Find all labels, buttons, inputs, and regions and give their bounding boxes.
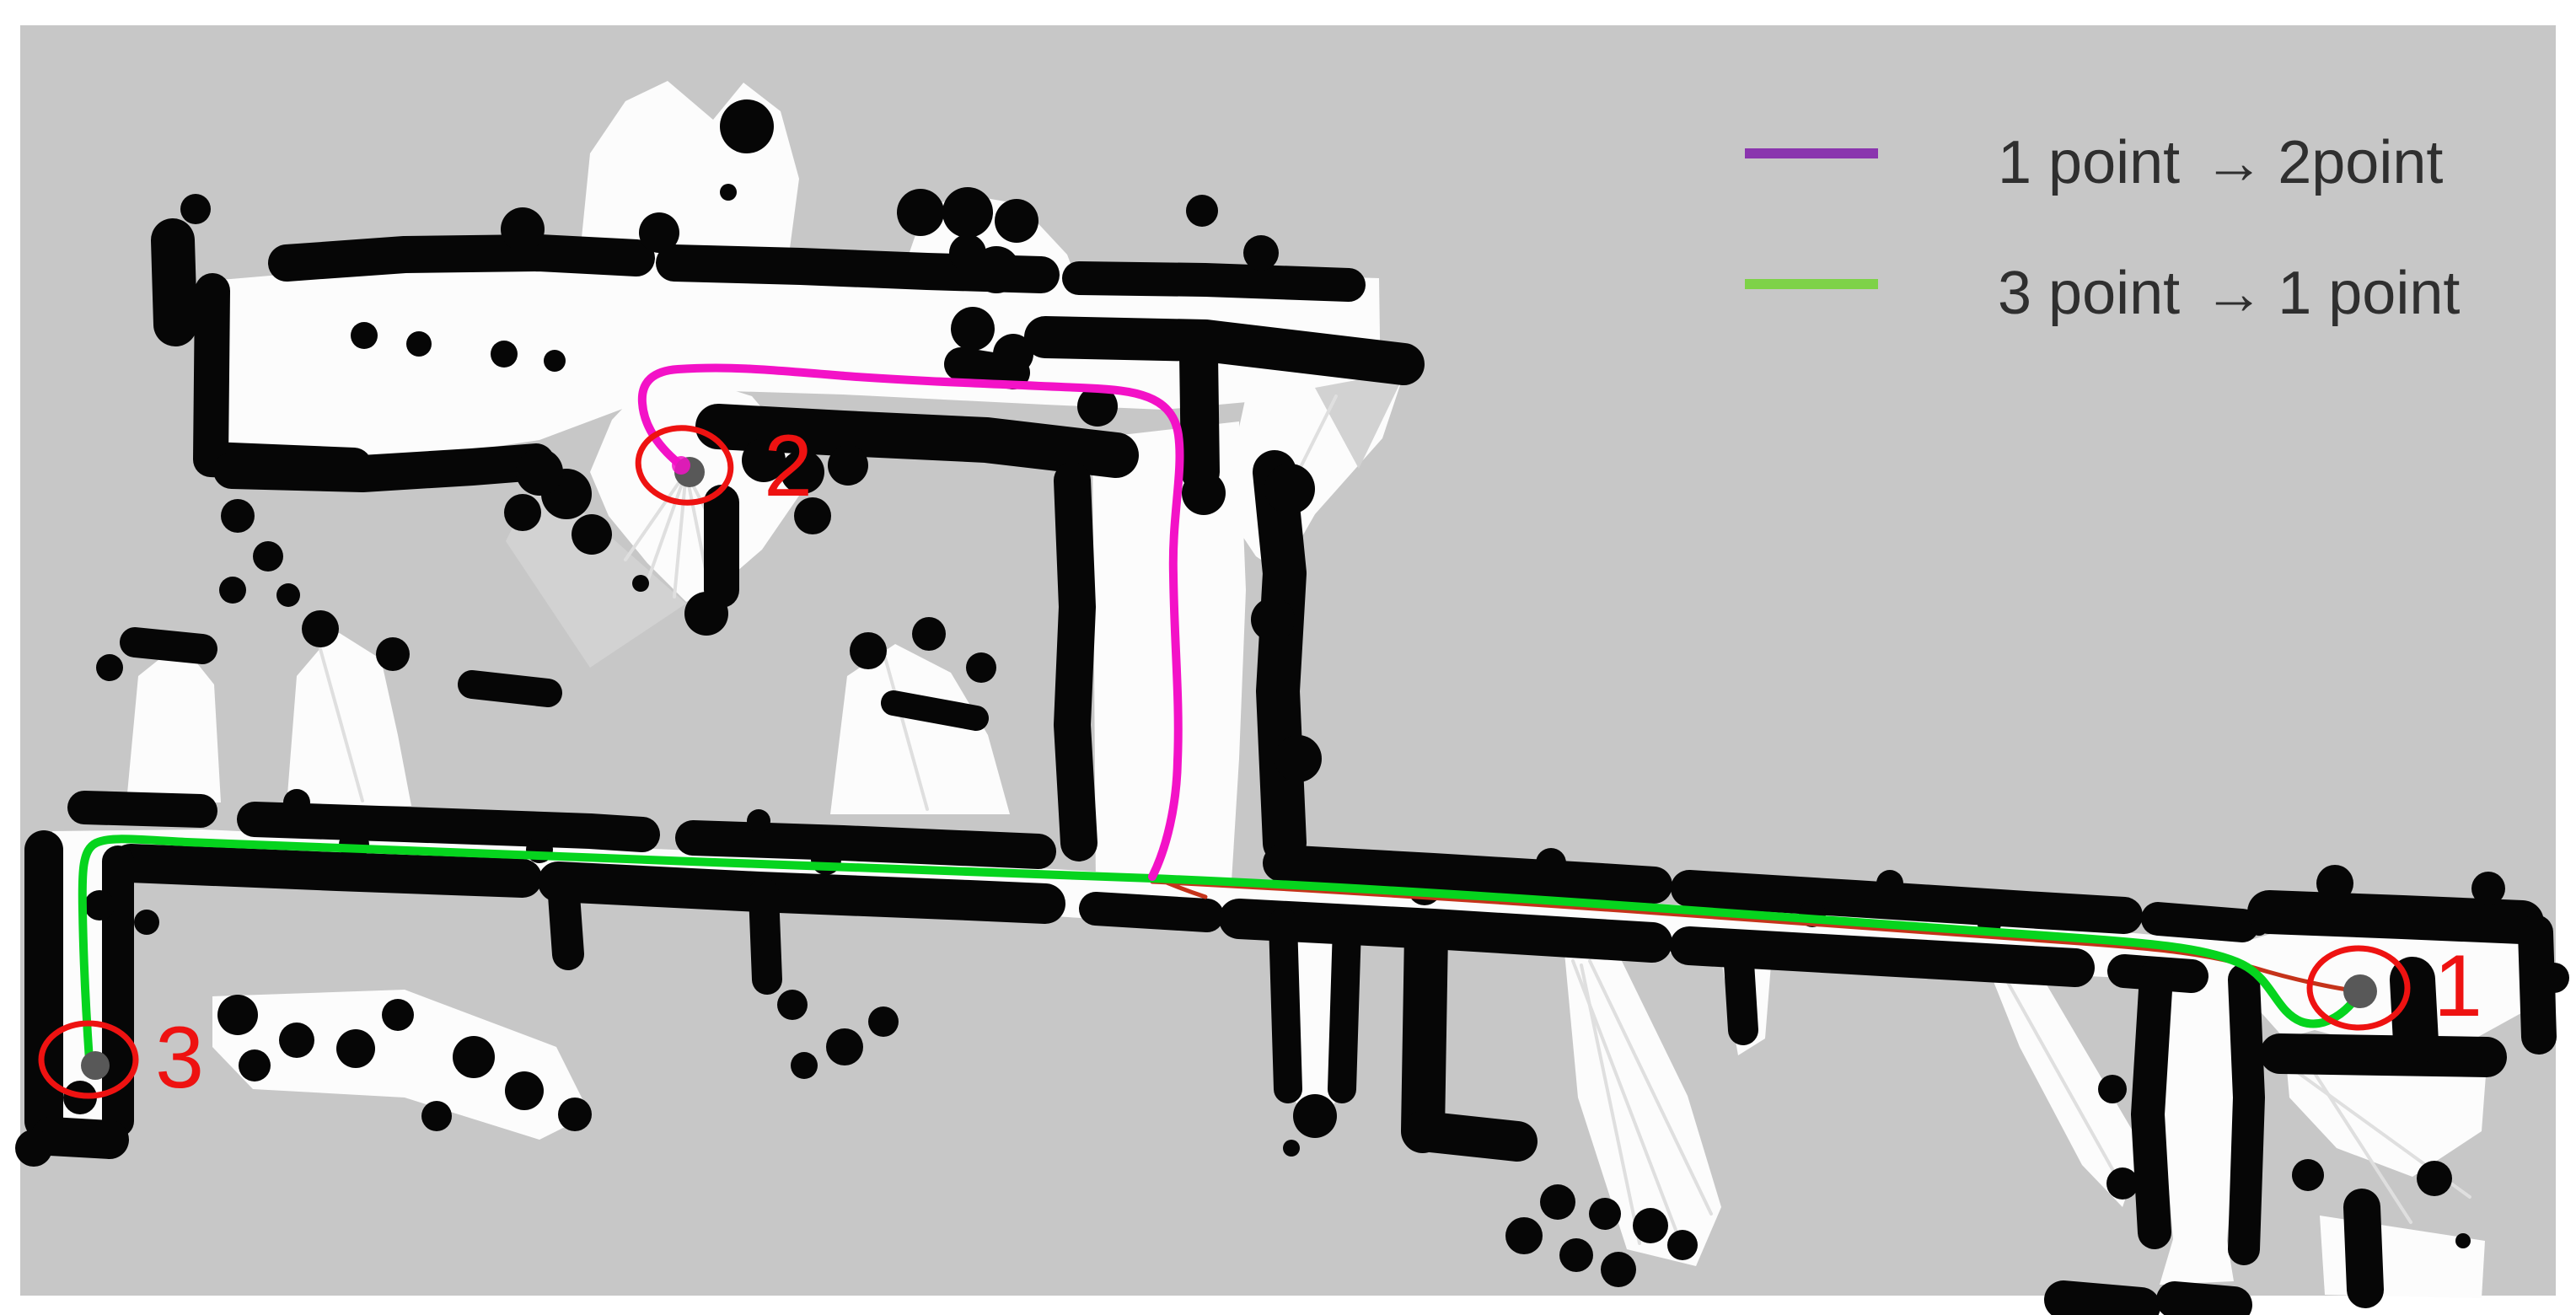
map-wall-blobs-lower-shape <box>1633 1208 1668 1243</box>
map-walls-lower-shape <box>1738 949 1743 1030</box>
map-walls-lower-shape <box>84 808 201 811</box>
legend-label-1-to-2: 1 point→2point <box>1998 129 2443 196</box>
map-walls-lower-shape <box>693 838 1038 851</box>
map-walls-lower-shape <box>1342 927 1347 1089</box>
map-wall-blobs-upper-shape <box>376 637 410 671</box>
map-walls-lower-shape <box>255 819 642 835</box>
map-wall-blobs-upper-shape <box>684 592 728 636</box>
map-walls-lower-shape <box>51 1136 110 1140</box>
map-wall-blobs-lower-shape <box>2251 919 2267 936</box>
map-wall-blobs-upper-shape <box>951 307 995 351</box>
legend-label-1-to-2-shape: → <box>2203 129 2264 196</box>
map-walls-lower-shape <box>563 883 568 954</box>
map-wall-blobs-lower-shape <box>777 990 808 1020</box>
map-wall-blobs-upper-shape <box>897 189 944 236</box>
marker-label-2: 2 <box>764 417 813 515</box>
map-wall-blobs-lower-shape <box>283 789 310 816</box>
map-wall-blobs-lower-shape <box>558 1098 592 1131</box>
map-wall-blobs-lower-shape <box>279 1022 314 1058</box>
legend-swatch-green <box>1745 279 1878 289</box>
map-wall-blobs-lower-shape <box>1283 1140 1300 1157</box>
map-wall-blobs-upper-shape <box>1243 235 1279 271</box>
map-wall-blobs-lower-shape <box>336 1029 375 1068</box>
map-wall-blobs-lower-shape <box>1667 1230 1698 1260</box>
map-wall-blobs-upper-shape <box>632 575 649 592</box>
map-wall-blobs-upper-shape <box>276 583 300 607</box>
map-wall-blobs-upper-shape <box>828 445 868 486</box>
map-wall-blobs-lower-shape <box>505 1071 544 1110</box>
map-wall-blobs-lower-shape <box>15 1130 52 1167</box>
map-walls-lower-shape <box>2158 919 2242 926</box>
map-walls-upper-shape <box>472 684 548 693</box>
map-wall-blobs-upper-shape <box>180 194 211 224</box>
map-walls-lower-shape <box>1423 1131 1517 1141</box>
map-wall-blobs-upper-shape <box>1186 195 1218 227</box>
map-wall-blobs-upper-shape <box>253 541 283 572</box>
legend-label-3-to-1: 3 point→1 point <box>1998 260 2460 327</box>
map-walls-lower-shape <box>2175 1300 2234 1305</box>
map-wall-blobs-lower-shape <box>1601 1252 1636 1287</box>
map-wall-blobs-upper-shape <box>995 199 1038 243</box>
map-walls-upper-shape <box>173 240 175 325</box>
waypoint-2-pose-tint <box>672 456 690 475</box>
map-walls-upper-shape <box>287 253 636 263</box>
map-walls-upper-shape <box>1072 480 1079 843</box>
map-wall-blobs-upper-shape <box>491 341 518 368</box>
map-wall-blobs-lower-shape <box>826 1028 863 1065</box>
map-walls-lower-shape <box>131 863 523 878</box>
map-wall-blobs-upper-shape <box>720 99 774 153</box>
map-walls-lower-shape <box>558 882 1045 904</box>
map-walls-upper-shape <box>1275 472 1285 843</box>
map-wall-blobs-lower-shape <box>1876 870 1903 897</box>
map-walls-upper-shape <box>894 703 976 718</box>
map-wall-blobs-lower-shape <box>2471 872 2505 905</box>
legend-swatch-purple <box>1745 148 1878 158</box>
map-wall-blobs-lower-shape <box>2417 1161 2452 1196</box>
legend-label-1-to-2-shape: 2point <box>2278 129 2443 196</box>
map-wall-blobs-upper-shape <box>850 632 887 669</box>
map-wall-blobs-lower-shape <box>84 890 115 920</box>
map-walls-lower-shape <box>2536 932 2539 1037</box>
map-walls-upper-shape <box>1079 278 1349 285</box>
legend-label-3-to-1-shape: 3 point <box>1998 260 2180 327</box>
map-wall-blobs-lower-shape <box>134 910 159 935</box>
map-wall-blobs-lower-shape <box>453 1036 495 1078</box>
marker-label-1: 1 <box>2434 937 2482 1035</box>
map-wall-blobs-upper-shape <box>351 322 378 349</box>
map-wall-blobs-lower-shape <box>2539 963 2569 993</box>
map-wall-blobs-lower-shape <box>868 1006 899 1037</box>
map-wall-blobs-upper-shape <box>993 334 1033 374</box>
map-wall-blobs-upper-shape <box>1182 471 1226 515</box>
map-wall-blobs-lower-shape <box>2098 1075 2127 1103</box>
map-walls-upper-shape <box>135 642 202 649</box>
map-wall-blobs-lower-shape <box>2292 1159 2324 1191</box>
map-walls-lower-shape <box>1283 922 1288 1089</box>
map-wall-blobs-upper-shape <box>912 617 946 651</box>
map-wall-blobs-lower-shape <box>747 809 770 833</box>
marker-label-3: 3 <box>155 1009 204 1107</box>
map-walls-upper-shape <box>232 462 536 474</box>
map-walls-lower-shape <box>1281 863 1654 885</box>
map-wall-blobs-upper-shape <box>501 207 545 251</box>
map-wall-blobs-upper-shape <box>1251 598 1295 641</box>
map-wall-blobs-lower-shape <box>791 1052 818 1079</box>
map-wall-blobs-upper-shape <box>302 610 339 647</box>
map-wall-blobs-upper-shape <box>544 350 566 372</box>
map-wall-blobs-upper-shape <box>219 577 246 604</box>
waypoint-dot-3 <box>81 1051 110 1080</box>
map-wall-blobs-lower-shape <box>1293 1094 1337 1138</box>
map-wall-blobs-upper-shape <box>221 499 255 533</box>
map-wall-blobs-upper-shape <box>406 331 432 357</box>
waypoint-dot-1 <box>2343 974 2377 1008</box>
map-wall-blobs-upper-shape <box>1275 735 1322 782</box>
map-wall-blobs-lower-shape <box>1505 1217 1543 1254</box>
map-wall-blobs-lower-shape <box>2316 865 2353 902</box>
map-walls-lower-shape <box>2269 912 2522 922</box>
map-wall-blobs-lower-shape <box>1536 848 1566 878</box>
map-wall-blobs-lower-shape <box>1589 1198 1621 1230</box>
map-wall-blobs-lower-shape <box>217 995 258 1035</box>
map-wall-blobs-upper-shape <box>504 494 541 531</box>
map-walls-lower-shape <box>764 894 767 980</box>
map-walls-upper-shape <box>1199 354 1200 472</box>
map-wall-blobs-upper-shape <box>1264 464 1315 514</box>
map-wall-blobs-upper-shape <box>96 654 123 681</box>
map-canvas: 1 2 3 1 point→2point 3 point→1 point <box>0 0 2576 1315</box>
map-wall-blobs-lower-shape <box>2106 1167 2139 1200</box>
map-wall-blobs-upper-shape <box>973 246 1020 293</box>
map-walls-lower-shape <box>2148 976 2156 1232</box>
map-wall-blobs-lower-shape <box>382 999 414 1031</box>
map-walls-lower-shape <box>2244 980 2249 1249</box>
map-wall-blobs-upper-shape <box>942 187 993 238</box>
map-wall-blobs-lower-shape <box>421 1101 452 1131</box>
map-walls-lower-shape <box>2362 1207 2365 1290</box>
map-wall-blobs-lower-shape <box>1540 1184 1575 1220</box>
map-walls-lower-shape <box>1423 932 1426 1131</box>
map-wall-blobs-upper-shape <box>966 652 996 683</box>
legend-label-3-to-1-shape: → <box>2203 260 2264 327</box>
map-walls-lower-shape <box>2412 980 2416 1042</box>
legend-label-1-to-2-shape: 1 point <box>1998 129 2180 196</box>
map-walls-lower-shape <box>2280 1054 2487 1057</box>
map-wall-blobs-upper-shape <box>572 514 612 555</box>
map-wall-blobs-upper-shape <box>639 212 679 253</box>
map-figure: 1 2 3 1 point→2point 3 point→1 point <box>0 0 2576 1315</box>
map-wall-blobs-lower-shape <box>2455 1233 2471 1248</box>
map-wall-blobs-upper-shape <box>516 448 563 496</box>
map-walls-lower-shape <box>1096 909 1207 915</box>
map-wall-blobs-lower-shape <box>1559 1238 1593 1272</box>
map-walls-lower-shape <box>2063 1300 2141 1307</box>
legend-label-3-to-1-shape: 1 point <box>2278 260 2460 327</box>
map-wall-blobs-lower-shape <box>239 1049 271 1082</box>
map-wall-blobs-upper-shape <box>720 184 737 201</box>
